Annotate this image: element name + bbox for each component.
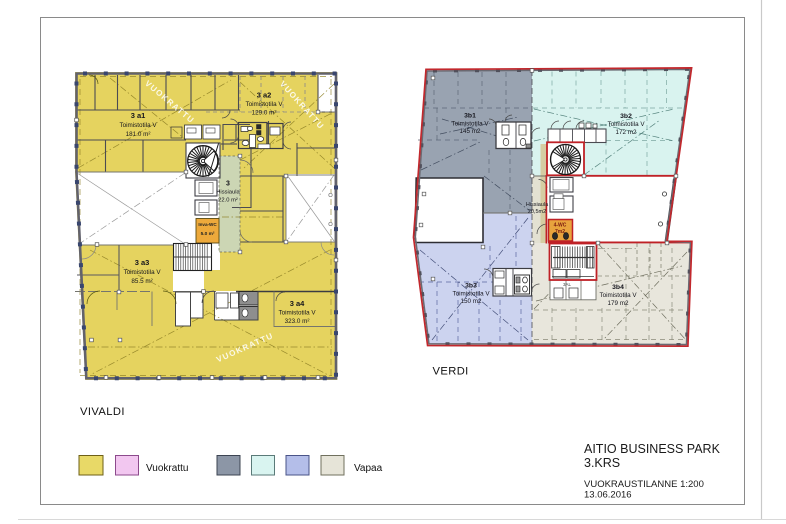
svg-text:3 a3: 3 a3 [135,258,150,267]
svg-text:4-WC: 4-WC [554,223,567,229]
svg-text:Hissiaula: Hissiaula [526,202,549,208]
svg-text:181.0 m²: 181.0 m² [126,131,151,138]
svg-text:Inva-WC: Inva-WC [198,222,217,227]
svg-text:Hissiaula: Hissiaula [216,190,240,196]
svg-text:Toimistotila V: Toimistotila V [599,292,637,299]
svg-text:3b4: 3b4 [612,284,624,291]
svg-text:VIVALDI: VIVALDI [80,406,125,418]
svg-text:Toimistotila V: Toimistotila V [119,122,157,129]
svg-text:3b3: 3b3 [465,283,477,290]
svg-text:VERDI: VERDI [433,366,469,378]
svg-text:3: 3 [226,181,230,188]
svg-text:13.06.2016: 13.06.2016 [584,490,632,501]
svg-text:Toimistotila V: Toimistotila V [452,291,490,298]
svg-text:3.KRS: 3.KRS [584,456,620,470]
svg-text:Toimistotila V: Toimistotila V [451,121,489,128]
svg-text:20,5m2: 20,5m2 [528,209,546,215]
svg-text:AITIO BUSINESS PARK: AITIO BUSINESS PARK [584,442,721,456]
svg-text:3b2: 3b2 [620,113,632,120]
svg-text:323.0 m²: 323.0 m² [285,318,310,325]
svg-text:85.5 m²: 85.5 m² [131,278,152,285]
svg-text:Toimistotila V: Toimistotila V [607,121,645,128]
svg-text:Toimistotila V: Toimistotila V [278,310,316,317]
svg-text:3 a2: 3 a2 [257,91,272,100]
svg-text:150 m2: 150 m2 [460,298,482,305]
svg-text:129.0 m²: 129.0 m² [252,110,277,117]
svg-text:Vapaa: Vapaa [354,463,383,474]
svg-text:179 m2: 179 m2 [607,300,629,307]
svg-text:145 m2: 145 m2 [459,128,481,135]
svg-text:VUOKRAUSTILANNE 1:200: VUOKRAUSTILANNE 1:200 [584,479,704,490]
svg-text:Vuokrattu: Vuokrattu [146,463,188,474]
svg-text:3 a1: 3 a1 [131,111,146,120]
svg-text:3b1: 3b1 [464,113,476,120]
svg-text:5.0 m²: 5.0 m² [201,231,215,237]
svg-text:Toimistotila V: Toimistotila V [123,269,161,276]
svg-text:3AL: 3AL [563,282,572,287]
svg-text:172 m2: 172 m2 [615,129,637,136]
svg-text:Toimistotila V: Toimistotila V [245,101,283,108]
svg-text:3 a4: 3 a4 [290,299,305,308]
svg-text:22.0 m²: 22.0 m² [218,198,238,204]
